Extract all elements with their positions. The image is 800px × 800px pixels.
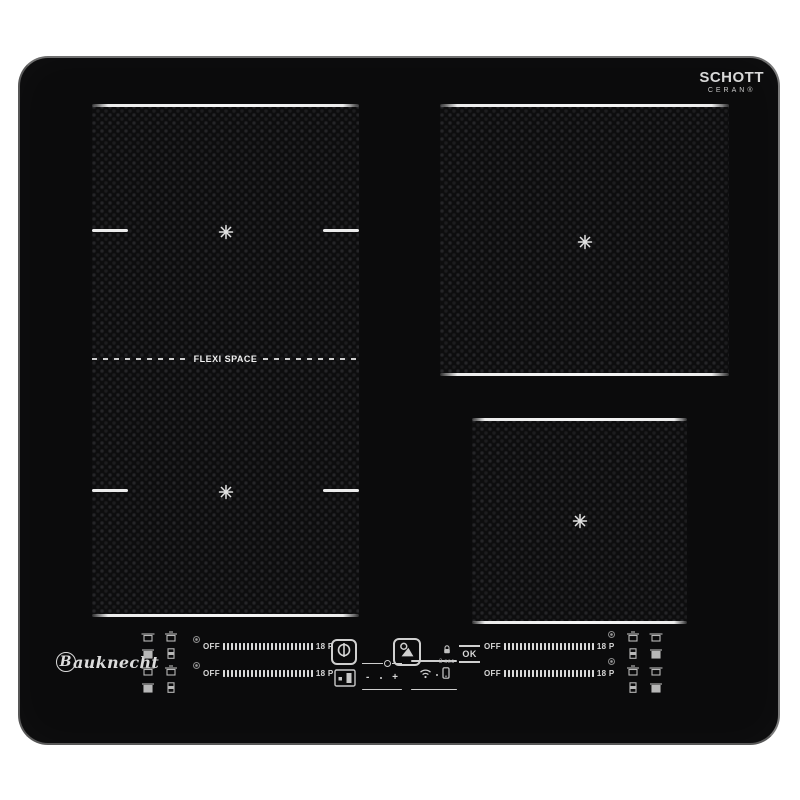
induction-hob-glass: SCHOTT CERAN® FLEXI SPACE: [18, 56, 780, 745]
slider-tick[interactable]: [552, 643, 554, 650]
pot-filled-icon[interactable]: [649, 648, 663, 659]
power-slider-left-top[interactable]: OFF 18 P: [203, 642, 334, 651]
slider-tick[interactable]: [544, 643, 546, 650]
slider-tick[interactable]: [235, 670, 237, 677]
smartphone-icon: [442, 666, 450, 684]
slider-tick[interactable]: [588, 643, 590, 650]
zone-marker: [92, 229, 128, 232]
plus-key[interactable]: +: [392, 673, 398, 683]
slider-tick[interactable]: [572, 670, 574, 677]
slider-tick[interactable]: [291, 643, 293, 650]
indicator-dot: [608, 658, 615, 665]
child-lock-control[interactable]: 3 sec OK: [439, 642, 480, 665]
slider-tick[interactable]: [263, 643, 265, 650]
slider-tick[interactable]: [536, 643, 538, 650]
line: [362, 689, 402, 691]
flexi-space-label: FLEXI SPACE: [188, 354, 264, 364]
line: [362, 663, 383, 665]
slider-tick[interactable]: [532, 643, 534, 650]
slider-tick[interactable]: [239, 643, 241, 650]
slider-tick[interactable]: [576, 643, 578, 650]
slider-tick[interactable]: [311, 670, 313, 677]
slider-tick[interactable]: [580, 643, 582, 650]
slider-tick[interactable]: [235, 643, 237, 650]
slider-tick[interactable]: [263, 670, 265, 677]
slider-tick[interactable]: [552, 670, 554, 677]
slider-tick[interactable]: [283, 643, 285, 650]
indicator-dot: [608, 631, 615, 638]
slider-tick[interactable]: [251, 670, 253, 677]
slider-tick[interactable]: [504, 643, 506, 650]
ceran-wordmark: CERAN®: [699, 87, 764, 94]
pot-filled-icon[interactable]: [141, 648, 155, 659]
slider-tick[interactable]: [548, 670, 550, 677]
slider-tick[interactable]: [536, 670, 538, 677]
slider-ticks[interactable]: [504, 643, 594, 650]
zone-border-top: [92, 104, 359, 107]
pan-detection-icon: [577, 234, 593, 250]
ok-key[interactable]: OK: [459, 645, 480, 663]
slider-tick[interactable]: [279, 643, 281, 650]
slider-tick[interactable]: [528, 670, 530, 677]
slider-tick[interactable]: [568, 670, 570, 677]
slider-off-label[interactable]: OFF: [484, 669, 501, 678]
pot-lid-icon[interactable]: [164, 665, 178, 676]
slider-tick[interactable]: [239, 670, 241, 677]
slider-tick[interactable]: [275, 643, 277, 650]
zone-border-top: [472, 418, 687, 421]
dot-icon: [436, 674, 438, 676]
slider-tick[interactable]: [247, 643, 249, 650]
slider-tick[interactable]: [299, 670, 301, 677]
slider-tick[interactable]: [592, 670, 594, 677]
slider-tick[interactable]: [223, 670, 225, 677]
slider-tick[interactable]: [307, 643, 309, 650]
slider-tick[interactable]: [504, 670, 506, 677]
flexi-zone-left: FLEXI SPACE: [92, 105, 359, 615]
line: [411, 689, 457, 691]
slider-tick[interactable]: [576, 670, 578, 677]
slider-tick[interactable]: [231, 670, 233, 677]
slider-off-label[interactable]: OFF: [203, 642, 220, 651]
slider-tick[interactable]: [572, 643, 574, 650]
hold-duration-label: 3 sec: [439, 659, 454, 665]
slider-tick[interactable]: [508, 670, 510, 677]
slider-tick[interactable]: [283, 670, 285, 677]
slider-off-label[interactable]: OFF: [484, 642, 501, 651]
cookware-function-keys-right: [626, 631, 663, 693]
slider-tick[interactable]: [556, 643, 558, 650]
slider-tick[interactable]: [247, 670, 249, 677]
slider-tick[interactable]: [560, 670, 562, 677]
slider-tick[interactable]: [255, 670, 257, 677]
zone-marker: [323, 489, 359, 492]
saucepan-icon[interactable]: [141, 631, 155, 642]
slider-tick[interactable]: [267, 643, 269, 650]
canister-icon[interactable]: [164, 682, 178, 693]
slider-tick[interactable]: [279, 670, 281, 677]
indicator-dot: [193, 636, 200, 643]
slider-tick[interactable]: [307, 670, 309, 677]
slider-tick[interactable]: [271, 643, 273, 650]
slider-tick[interactable]: [528, 643, 530, 650]
flexi-space-divider: FLEXI SPACE: [92, 354, 359, 364]
slider-tick[interactable]: [259, 670, 261, 677]
padlock-icon: [443, 642, 451, 658]
slider-tick[interactable]: [231, 643, 233, 650]
zone-upper-right: [440, 105, 729, 374]
slider-tick[interactable]: [560, 643, 562, 650]
slider-tick[interactable]: [540, 670, 542, 677]
slider-max-label[interactable]: 18 P: [597, 669, 615, 678]
pan-detection-icon: [572, 513, 588, 529]
pot-filled-icon[interactable]: [649, 682, 663, 693]
slider-tick[interactable]: [227, 670, 229, 677]
cookware-function-keys-left: [141, 631, 178, 693]
pot-lid-icon[interactable]: [164, 631, 178, 642]
slider-tick[interactable]: [303, 643, 305, 650]
lock-display-button[interactable]: [334, 669, 356, 692]
wifi-icon: [419, 666, 432, 684]
slider-tick[interactable]: [512, 643, 514, 650]
slider-tick[interactable]: [524, 643, 526, 650]
slider-tick[interactable]: [251, 643, 253, 650]
slider-tick[interactable]: [564, 670, 566, 677]
slider-knob-icon: [384, 660, 391, 667]
slider-tick[interactable]: [516, 670, 518, 677]
slider-tick[interactable]: [223, 643, 225, 650]
product-photo: SCHOTT CERAN® FLEXI SPACE: [0, 0, 800, 800]
canister-icon[interactable]: [626, 648, 640, 659]
zone-lower-right: [472, 419, 687, 622]
slider-tick[interactable]: [255, 643, 257, 650]
slider-tick[interactable]: [568, 643, 570, 650]
slider-off-label[interactable]: OFF: [203, 669, 220, 678]
slider-tick[interactable]: [299, 643, 301, 650]
slider-ticks[interactable]: [504, 670, 594, 677]
slider-tick[interactable]: [556, 670, 558, 677]
slider-tick[interactable]: [524, 670, 526, 677]
slider-tick[interactable]: [584, 643, 586, 650]
pot-lid-icon[interactable]: [626, 631, 640, 642]
slider-tick[interactable]: [520, 643, 522, 650]
slider-ticks[interactable]: [223, 670, 313, 677]
slider-ticks[interactable]: [223, 643, 313, 650]
slider-tick[interactable]: [588, 670, 590, 677]
saucepan-icon[interactable]: [649, 665, 663, 676]
slider-tick[interactable]: [584, 670, 586, 677]
zone-border-bottom: [472, 621, 687, 624]
power-button[interactable]: [331, 639, 357, 665]
slider-tick[interactable]: [243, 670, 245, 677]
slider-tick[interactable]: [275, 670, 277, 677]
dashed-line: [263, 358, 359, 360]
slider-tick[interactable]: [520, 670, 522, 677]
slider-tick[interactable]: [303, 670, 305, 677]
slider-tick[interactable]: [271, 670, 273, 677]
slider-tick[interactable]: [287, 643, 289, 650]
zone-border-bottom: [92, 614, 359, 617]
power-icon: [336, 642, 352, 663]
slider-tick[interactable]: [295, 643, 297, 650]
pan-detection-icon: [218, 224, 234, 240]
schott-ceran-logo: SCHOTT CERAN®: [699, 70, 764, 94]
slider-tick[interactable]: [580, 670, 582, 677]
minus-key[interactable]: -: [366, 673, 369, 683]
slider-tick[interactable]: [516, 643, 518, 650]
slider-tick[interactable]: [564, 643, 566, 650]
slider-tick[interactable]: [508, 643, 510, 650]
lock-display-icon: [334, 669, 356, 692]
zone-border-bottom: [440, 373, 729, 376]
slider-tick[interactable]: [512, 670, 514, 677]
canister-icon[interactable]: [164, 648, 178, 659]
slider-tick[interactable]: [267, 670, 269, 677]
slider-tick[interactable]: [259, 643, 261, 650]
slider-tick[interactable]: [227, 643, 229, 650]
pot-lid-icon[interactable]: [626, 665, 640, 676]
zone-border-top: [440, 104, 729, 107]
dashed-line: [92, 358, 188, 360]
slider-tick[interactable]: [291, 670, 293, 677]
slider-tick[interactable]: [295, 670, 297, 677]
zone-marker: [323, 229, 359, 232]
pan-detection-icon: [218, 484, 234, 500]
slider-tick[interactable]: [243, 643, 245, 650]
slider-tick[interactable]: [311, 643, 313, 650]
slider-max-label[interactable]: 18 P: [316, 669, 334, 678]
slider-max-label[interactable]: 18 P: [597, 642, 615, 651]
schott-wordmark: SCHOTT: [699, 70, 764, 85]
saucepan-icon[interactable]: [141, 665, 155, 676]
power-slider-left-bottom[interactable]: OFF 18 P: [203, 669, 334, 678]
zone-marker: [92, 489, 128, 492]
slider-tick[interactable]: [287, 670, 289, 677]
hold-hint: 3 sec: [439, 642, 454, 665]
slider-tick[interactable]: [544, 670, 546, 677]
slider-tick[interactable]: [532, 670, 534, 677]
dot-icon: [380, 677, 382, 679]
power-slider-right-bottom[interactable]: OFF 18 P: [484, 669, 615, 678]
slider-tick[interactable]: [592, 643, 594, 650]
slider-tick[interactable]: [548, 643, 550, 650]
indicator-dot: [193, 662, 200, 669]
power-slider-right-top[interactable]: OFF 18 P: [484, 642, 615, 651]
saucepan-icon[interactable]: [649, 631, 663, 642]
canister-icon[interactable]: [626, 682, 640, 693]
slider-tick[interactable]: [540, 643, 542, 650]
pot-filled-icon[interactable]: [141, 682, 155, 693]
